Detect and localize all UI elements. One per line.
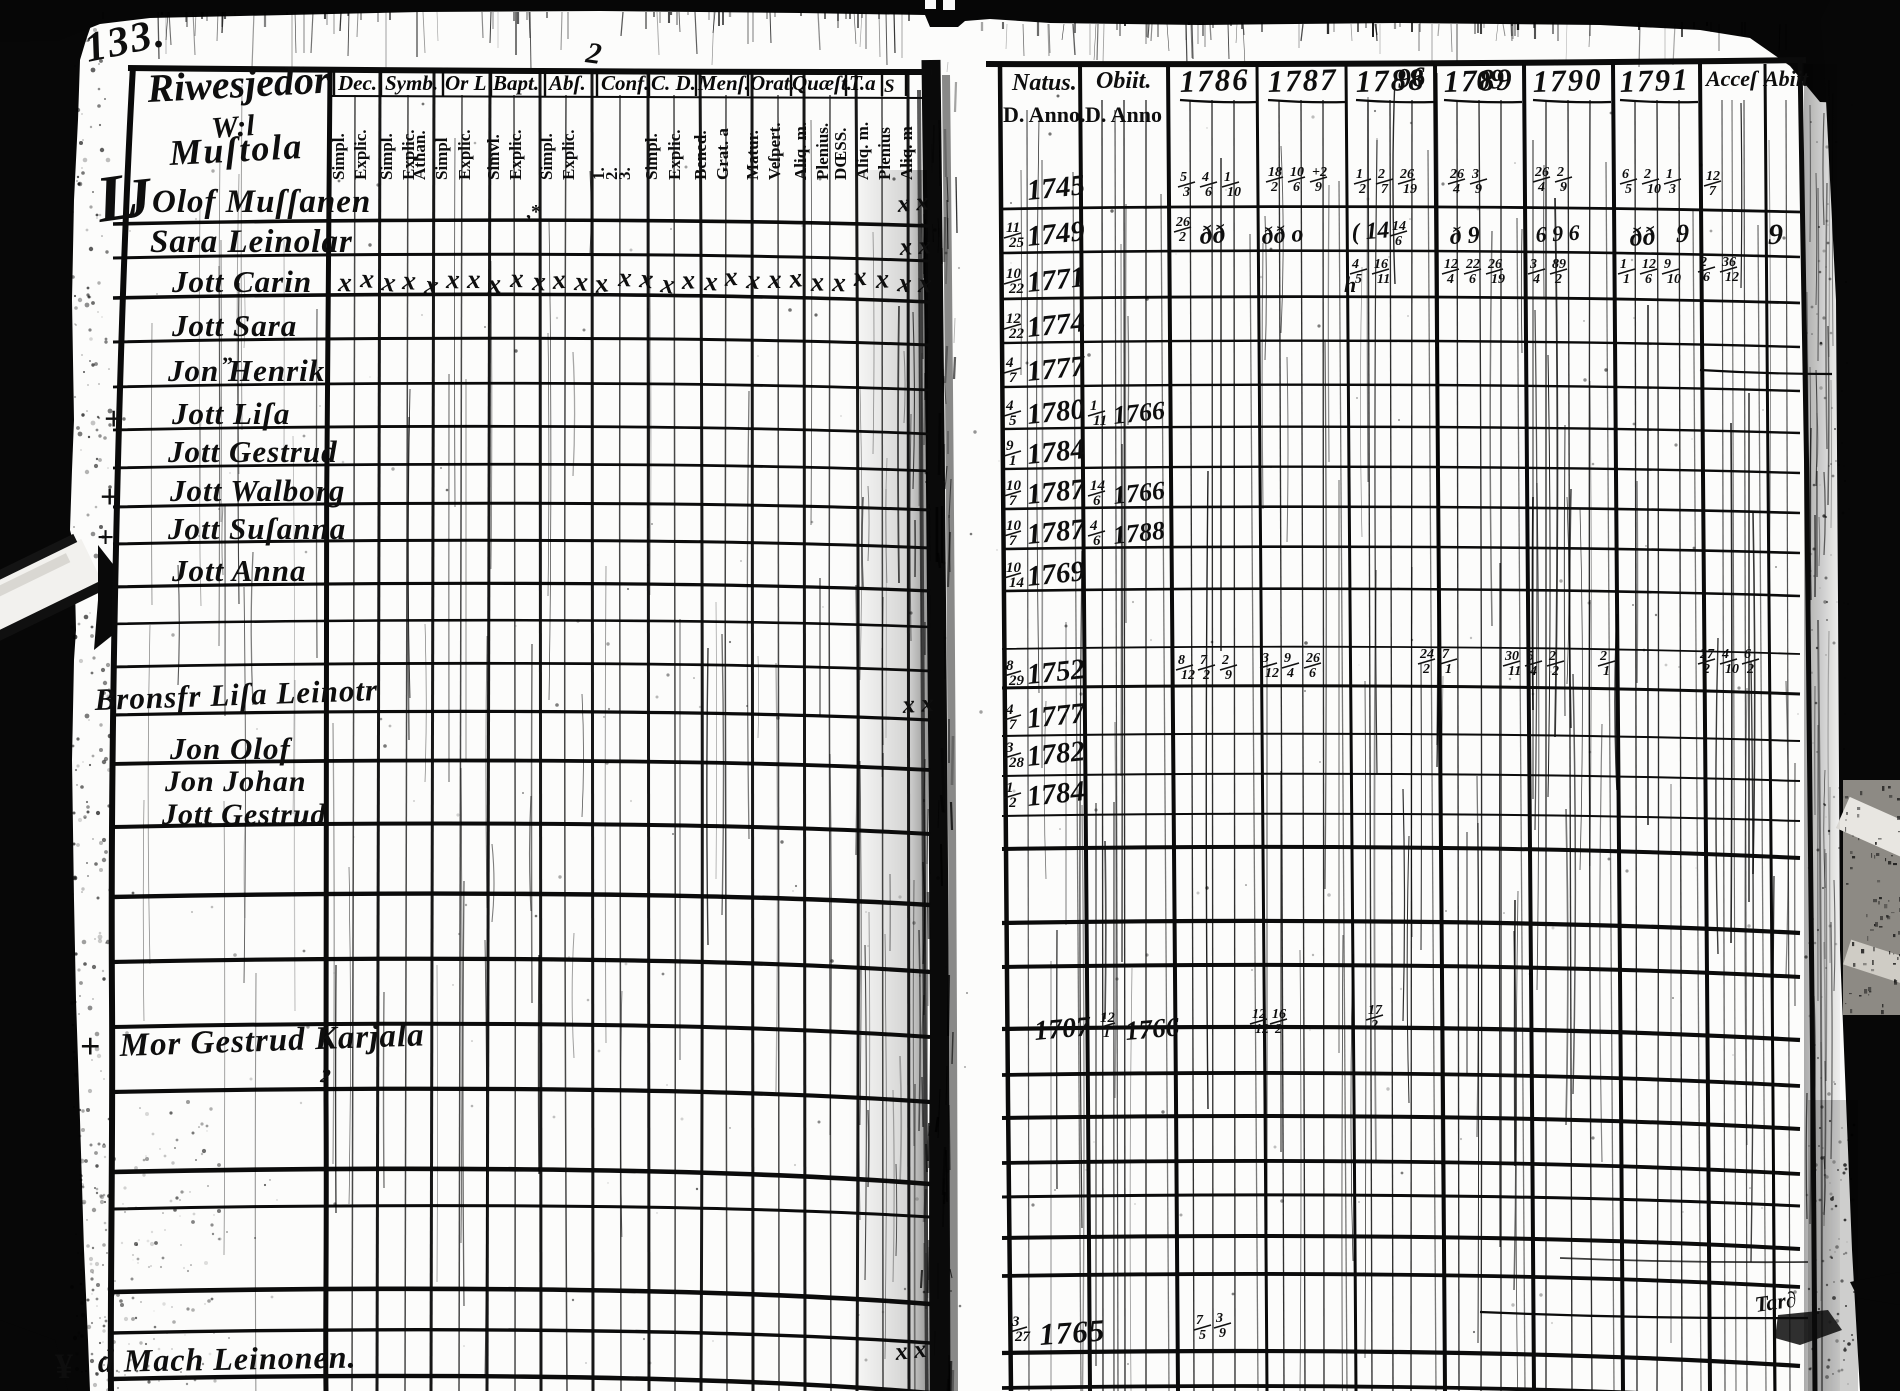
svg-text:3: 3 xyxy=(1182,185,1190,200)
svg-text:Jott Gestrud: Jott Gestrud xyxy=(167,434,338,469)
svg-text:3: 3 xyxy=(1471,167,1479,182)
svg-text:5: 5 xyxy=(1180,170,1187,185)
svg-text:x: x xyxy=(337,267,352,297)
svg-text:1766: 1766 xyxy=(1112,396,1167,430)
svg-text:4: 4 xyxy=(1201,170,1209,185)
svg-text:3.: 3. xyxy=(615,167,634,180)
svg-text:Plenius: Plenius xyxy=(875,127,894,180)
svg-text:x: x xyxy=(809,266,825,297)
svg-text:Or L: Or L xyxy=(445,71,486,95)
svg-text:DŒSS.: DŒSS. xyxy=(831,128,850,180)
svg-text:1777: 1777 xyxy=(1025,697,1088,735)
svg-text:Simvl.: Simvl. xyxy=(484,134,503,180)
svg-text:x: x xyxy=(722,261,739,292)
svg-text:x: x xyxy=(445,264,460,294)
svg-text:1788: 1788 xyxy=(1112,516,1167,550)
svg-text:x: x xyxy=(767,264,782,294)
svg-text:Riwesjedor: Riwesjedor xyxy=(145,56,331,111)
svg-text:2: 2 xyxy=(1358,182,1366,197)
svg-text:1791: 1791 xyxy=(1619,62,1690,99)
svg-text:6: 6 xyxy=(1205,185,1212,200)
svg-text:11: 11 xyxy=(1377,272,1390,287)
svg-text:+: + xyxy=(97,521,114,554)
svg-text:6: 6 xyxy=(1469,272,1476,287)
svg-text:6 9 6: 6 9 6 xyxy=(1535,220,1580,247)
svg-text:1: 1 xyxy=(1009,453,1017,469)
svg-text:Olof Muſſanen: Olof Muſſanen xyxy=(152,184,371,220)
svg-text:+: + xyxy=(104,401,123,438)
svg-text:2: 2 xyxy=(1643,167,1651,182)
svg-text:x: x xyxy=(874,263,890,294)
svg-text:9: 9 xyxy=(1284,651,1291,666)
svg-text:Aliq. m.: Aliq. m. xyxy=(791,122,810,180)
svg-text:4: 4 xyxy=(1005,702,1014,718)
svg-text:2: 2 xyxy=(1178,230,1186,245)
svg-text:3: 3 xyxy=(1668,182,1676,197)
svg-text:9: 9 xyxy=(1225,668,1232,683)
svg-text:Muſtola: Muſtola xyxy=(167,126,304,173)
svg-text:1749: 1749 xyxy=(1025,215,1086,253)
svg-text:6: 6 xyxy=(1309,666,1316,681)
svg-text:1: 1 xyxy=(1603,664,1610,679)
svg-text:”: ” xyxy=(222,352,233,377)
svg-text:2: 2 xyxy=(1202,668,1210,683)
svg-text:Simpl: Simpl xyxy=(432,137,451,180)
svg-text:7: 7 xyxy=(1709,184,1717,199)
svg-text:7: 7 xyxy=(1196,1313,1204,1328)
svg-text:Aliq. m: Aliq. m xyxy=(897,126,916,180)
svg-text:2: 2 xyxy=(319,1065,332,1088)
svg-text:ðð o: ðð o xyxy=(1261,221,1305,250)
svg-text:Jott Carin: Jott Carin xyxy=(171,264,312,299)
svg-text:6: 6 xyxy=(1744,647,1751,662)
svg-text:Natus.: Natus. xyxy=(1011,70,1077,96)
svg-text:1771: 1771 xyxy=(1025,261,1086,299)
svg-text:Jott Suſanna: Jott Suſanna xyxy=(167,511,346,546)
svg-text:ðð: ðð xyxy=(1198,219,1226,250)
svg-text:Menſ.: Menſ. xyxy=(697,71,750,95)
svg-text:10: 10 xyxy=(1725,662,1739,677)
svg-text:6: 6 xyxy=(1622,167,1629,182)
svg-text:Bened.: Bened. xyxy=(691,130,710,180)
svg-text:9: 9 xyxy=(1475,182,1482,197)
svg-text:1707: 1707 xyxy=(1033,1011,1092,1047)
svg-text:3: 3 xyxy=(1005,740,1014,756)
svg-text:8: 8 xyxy=(1006,658,1014,674)
svg-text:x: x xyxy=(486,268,502,299)
svg-text:D. Anno: D. Anno xyxy=(1085,102,1162,127)
svg-text:1765: 1765 xyxy=(1038,1312,1106,1352)
svg-text:2: 2 xyxy=(1699,255,1707,270)
svg-text:2: 2 xyxy=(1008,795,1017,811)
svg-text:7: 7 xyxy=(1200,653,1208,668)
svg-text:4: 4 xyxy=(1529,664,1537,679)
svg-text:x: x xyxy=(509,263,524,293)
svg-text:6: 6 xyxy=(1093,493,1101,509)
svg-text:Simpl.: Simpl. xyxy=(537,133,556,180)
svg-text:x: x xyxy=(531,266,547,297)
svg-text:1786: 1786 xyxy=(1179,62,1250,99)
svg-text:Jott Walborg: Jott Walborg xyxy=(169,473,345,508)
svg-text:1766: 1766 xyxy=(1124,1011,1181,1046)
svg-text:96: 96 xyxy=(1396,62,1427,95)
svg-text:4: 4 xyxy=(1446,272,1454,287)
svg-text:25: 25 xyxy=(1008,235,1025,251)
svg-text:Athan.: Athan. xyxy=(410,130,429,180)
svg-text:10: 10 xyxy=(1227,185,1241,200)
svg-text:1: 1 xyxy=(1666,167,1673,182)
svg-text:Jott Liſa: Jott Liſa xyxy=(171,396,290,431)
svg-text:h: h xyxy=(1344,272,1356,297)
svg-text:8: 8 xyxy=(1178,653,1185,668)
svg-text:1769: 1769 xyxy=(1025,555,1086,593)
svg-text:Abiit: Abiit xyxy=(1762,66,1809,91)
svg-text:4: 4 xyxy=(1452,182,1460,197)
svg-text:Obiit.: Obiit. xyxy=(1096,68,1151,94)
svg-text:5: 5 xyxy=(1527,649,1534,664)
svg-text:x: x xyxy=(401,265,417,296)
svg-text:9: 9 xyxy=(1219,1326,1226,1341)
svg-text:14: 14 xyxy=(1009,575,1025,591)
svg-text:7: 7 xyxy=(1009,533,1017,549)
svg-text:22: 22 xyxy=(1008,281,1025,297)
svg-text:Orat.: Orat. xyxy=(750,71,795,95)
svg-text:9: 9 xyxy=(1768,218,1783,251)
svg-text:Plenius.: Plenius. xyxy=(813,123,832,180)
svg-text:Veſpert.: Veſpert. xyxy=(765,123,784,180)
svg-text:09: 09 xyxy=(1475,64,1506,97)
svg-text:6: 6 xyxy=(1293,180,1300,195)
svg-text:Dec.: Dec. xyxy=(337,71,377,95)
svg-text:1: 1 xyxy=(1090,398,1098,414)
svg-text:12: 12 xyxy=(1255,1022,1269,1037)
svg-text:x: x xyxy=(637,263,654,294)
svg-text:ð 9: ð 9 xyxy=(1449,222,1480,250)
svg-text:x x: x x xyxy=(893,1336,928,1366)
svg-text:2: 2 xyxy=(1746,662,1754,677)
svg-text:1787: 1787 xyxy=(1025,473,1088,511)
svg-text:1766: 1766 xyxy=(1112,476,1167,510)
svg-text:1: 1 xyxy=(1103,1025,1111,1041)
svg-text:2: 2 xyxy=(1274,1022,1282,1037)
svg-text:6: 6 xyxy=(1645,272,1652,287)
svg-text:Explic.: Explic. xyxy=(506,129,525,180)
svg-text:4: 4 xyxy=(1537,180,1545,195)
svg-text:Symb.: Symb. xyxy=(385,71,438,95)
svg-text:C. D.: C. D. xyxy=(651,71,696,95)
svg-text:10: 10 xyxy=(1667,272,1681,287)
svg-text:x: x xyxy=(550,264,567,295)
svg-text:1782: 1782 xyxy=(1025,735,1086,773)
svg-text:Quæſt.: Quæſt. xyxy=(792,71,852,95)
svg-text:x: x xyxy=(573,266,589,297)
svg-text:6: 6 xyxy=(1703,270,1710,285)
svg-text:1745: 1745 xyxy=(1025,169,1086,207)
svg-text:2: 2 xyxy=(1548,649,1556,664)
svg-text:( 14: ( 14 xyxy=(1351,217,1391,246)
svg-text:1784: 1784 xyxy=(1025,433,1086,471)
svg-text:5: 5 xyxy=(1625,182,1632,197)
svg-text:Jon Olof: Jon Olof xyxy=(169,731,292,766)
svg-text:x: x xyxy=(466,264,481,294)
svg-text:4: 4 xyxy=(1532,272,1540,287)
svg-text:27: 27 xyxy=(1014,1329,1031,1345)
svg-text:7: 7 xyxy=(1009,370,1017,386)
svg-text:29: 29 xyxy=(1008,673,1025,689)
svg-text:2: 2 xyxy=(1551,664,1559,679)
svg-text:x: x xyxy=(745,264,762,295)
svg-text:x: x xyxy=(680,264,696,295)
svg-text:4: 4 xyxy=(1005,398,1014,414)
svg-text:7: 7 xyxy=(1442,647,1450,662)
svg-text:2: 2 xyxy=(1556,165,1564,180)
svg-text:9: 9 xyxy=(1315,180,1322,195)
svg-text:3: 3 xyxy=(1529,257,1537,272)
svg-text:7: 7 xyxy=(1009,717,1017,733)
svg-text:3: 3 xyxy=(1011,1314,1020,1330)
svg-text:2: 2 xyxy=(1270,180,1278,195)
svg-text:5: 5 xyxy=(1199,1328,1206,1343)
svg-text:x: x xyxy=(617,262,633,292)
svg-text:Acceſ: Acceſ xyxy=(1704,66,1760,91)
svg-text:2: 2 xyxy=(1221,653,1229,668)
svg-text:1752: 1752 xyxy=(1025,653,1086,691)
svg-text:4: 4 xyxy=(1721,647,1729,662)
svg-text:S: S xyxy=(884,76,895,97)
svg-text:11: 11 xyxy=(1508,664,1521,679)
svg-text:9: 9 xyxy=(1006,438,1014,454)
svg-text:2: 2 xyxy=(1422,662,1430,677)
svg-text:ðð: ðð xyxy=(1628,221,1656,252)
svg-text:1: 1 xyxy=(1623,272,1630,287)
svg-text:1787: 1787 xyxy=(1025,513,1088,551)
svg-text:x: x xyxy=(831,267,846,297)
svg-text:5: 5 xyxy=(1009,413,1017,429)
svg-text:1774: 1774 xyxy=(1025,306,1086,344)
svg-text:1787: 1787 xyxy=(1267,62,1338,99)
svg-text:6: 6 xyxy=(1093,533,1101,549)
svg-text:+: + xyxy=(100,479,119,516)
svg-text:Jon Henrik: Jon Henrik xyxy=(167,353,325,388)
svg-text:D. Anno.: D. Anno. xyxy=(1003,102,1086,127)
svg-text:3: 3 xyxy=(1215,1311,1223,1326)
svg-text:7: 7 xyxy=(1009,493,1017,509)
svg-text:1777: 1777 xyxy=(1025,350,1088,388)
svg-text:Grat. a: Grat. a xyxy=(713,128,732,180)
svg-text:Conf.: Conf. xyxy=(601,71,649,95)
svg-text:2: 2 xyxy=(1377,167,1385,182)
svg-text:Abſ.: Abſ. xyxy=(547,71,586,95)
svg-text:¥: ¥ xyxy=(55,1346,73,1386)
svg-text:x: x xyxy=(359,263,375,294)
svg-text:10: 10 xyxy=(1647,182,1661,197)
svg-text:Jon Johan: Jon Johan xyxy=(164,765,307,798)
svg-text:19: 19 xyxy=(1403,182,1417,197)
svg-text:19: 19 xyxy=(1491,272,1505,287)
svg-text:1: 1 xyxy=(1006,780,1014,796)
svg-text:Jott Sara: Jott Sara xyxy=(171,308,297,343)
svg-text:9: 9 xyxy=(1676,219,1689,248)
svg-text:6: 6 xyxy=(1395,234,1402,249)
svg-text:3: 3 xyxy=(1261,651,1269,666)
svg-text:1790: 1790 xyxy=(1532,62,1603,99)
svg-text:1780: 1780 xyxy=(1025,393,1086,431)
svg-text:Aliq. m.: Aliq. m. xyxy=(853,122,872,180)
svg-text:Jott Gestrud: Jott Gestrud xyxy=(161,798,327,831)
svg-text:12: 12 xyxy=(1265,666,1279,681)
svg-text:1784: 1784 xyxy=(1025,775,1086,813)
svg-text:+: + xyxy=(80,1026,101,1066)
svg-text:Simpl.: Simpl. xyxy=(642,133,661,180)
svg-text:Explic.: Explic. xyxy=(559,129,578,180)
svg-text:x x: x x xyxy=(898,232,932,261)
svg-text:Bapt.: Bapt. xyxy=(492,71,539,95)
svg-text:x x: x x xyxy=(901,690,935,719)
svg-text:x x: x x xyxy=(895,188,929,218)
svg-text:9: 9 xyxy=(1664,257,1671,272)
svg-text:2: 2 xyxy=(1702,662,1710,677)
svg-text:Explic.: Explic. xyxy=(665,129,684,180)
svg-text:2: 2 xyxy=(1370,1018,1378,1033)
svg-text:Jott Anna: Jott Anna xyxy=(171,553,306,588)
svg-text:x: x xyxy=(703,266,719,297)
svg-text:Simpl.: Simpl. xyxy=(329,133,348,180)
svg-text:d Mach Leinonen.: d Mach Leinonen. xyxy=(97,1338,356,1379)
svg-text:4: 4 xyxy=(1351,257,1359,272)
svg-text:Sara Leinolar: Sara Leinolar xyxy=(150,224,353,260)
svg-text:4: 4 xyxy=(1089,518,1098,534)
svg-text:x: x xyxy=(851,261,868,292)
svg-text:28: 28 xyxy=(1008,755,1025,771)
svg-text:x: x xyxy=(917,268,933,299)
svg-text:2: 2 xyxy=(1554,272,1562,287)
svg-text:Explic.: Explic. xyxy=(351,129,370,180)
svg-text:22: 22 xyxy=(1008,326,1025,342)
svg-text:1: 1 xyxy=(1620,257,1627,272)
svg-text:Matur.: Matur. xyxy=(743,130,762,180)
svg-text:T.a: T.a xyxy=(849,71,876,95)
svg-text:,*: ,* xyxy=(526,201,541,223)
svg-text:12: 12 xyxy=(1181,668,1195,683)
svg-text:11: 11 xyxy=(1093,413,1107,429)
svg-text:12: 12 xyxy=(1725,270,1739,285)
svg-text:1: 1 xyxy=(1224,170,1231,185)
svg-text:7: 7 xyxy=(1381,182,1389,197)
svg-text:4: 4 xyxy=(1286,666,1294,681)
svg-text:4: 4 xyxy=(1005,355,1014,371)
svg-text:Explic.: Explic. xyxy=(455,129,474,180)
svg-text:1: 1 xyxy=(1356,167,1363,182)
svg-text:1: 1 xyxy=(1445,662,1452,677)
svg-text:2: 2 xyxy=(1599,649,1607,664)
svg-text:Simpl.: Simpl. xyxy=(377,133,396,180)
